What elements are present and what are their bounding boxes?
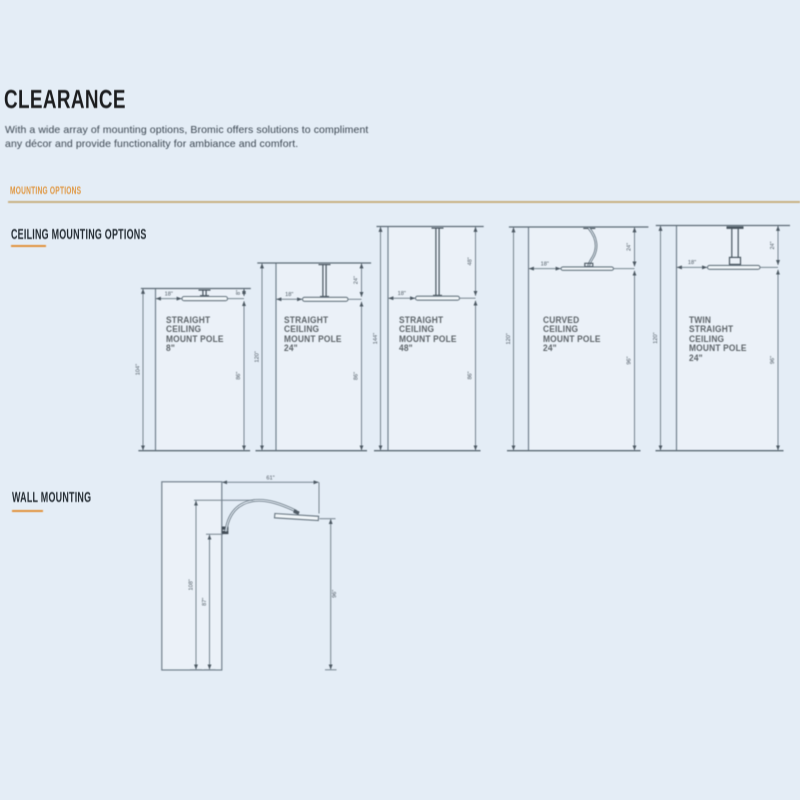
- svg-text:96": 96": [770, 356, 776, 364]
- svg-text:61": 61": [266, 475, 274, 481]
- svg-text:86": 86": [354, 372, 360, 380]
- svg-text:86": 86": [468, 371, 474, 379]
- svg-text:86": 86": [236, 372, 242, 380]
- svg-text:104": 104": [135, 364, 141, 375]
- svg-text:18": 18": [285, 292, 293, 298]
- svg-text:18": 18": [165, 291, 173, 297]
- svg-text:18": 18": [688, 260, 696, 266]
- svg-text:87": 87": [202, 598, 208, 606]
- svg-text:18": 18": [398, 291, 406, 297]
- svg-text:120": 120": [506, 333, 512, 344]
- svg-text:24": 24": [354, 276, 360, 284]
- svg-text:120": 120": [254, 351, 260, 362]
- svg-text:96": 96": [627, 356, 633, 364]
- svg-text:144": 144": [373, 333, 379, 344]
- svg-text:24": 24": [627, 243, 633, 251]
- svg-text:96": 96": [332, 590, 338, 598]
- svg-text:24": 24": [770, 241, 776, 249]
- svg-text:18": 18": [541, 261, 549, 267]
- svg-text:108": 108": [188, 579, 194, 590]
- svg-text:8": 8": [236, 290, 242, 295]
- svg-text:48": 48": [468, 257, 474, 265]
- svg-text:120": 120": [653, 332, 659, 343]
